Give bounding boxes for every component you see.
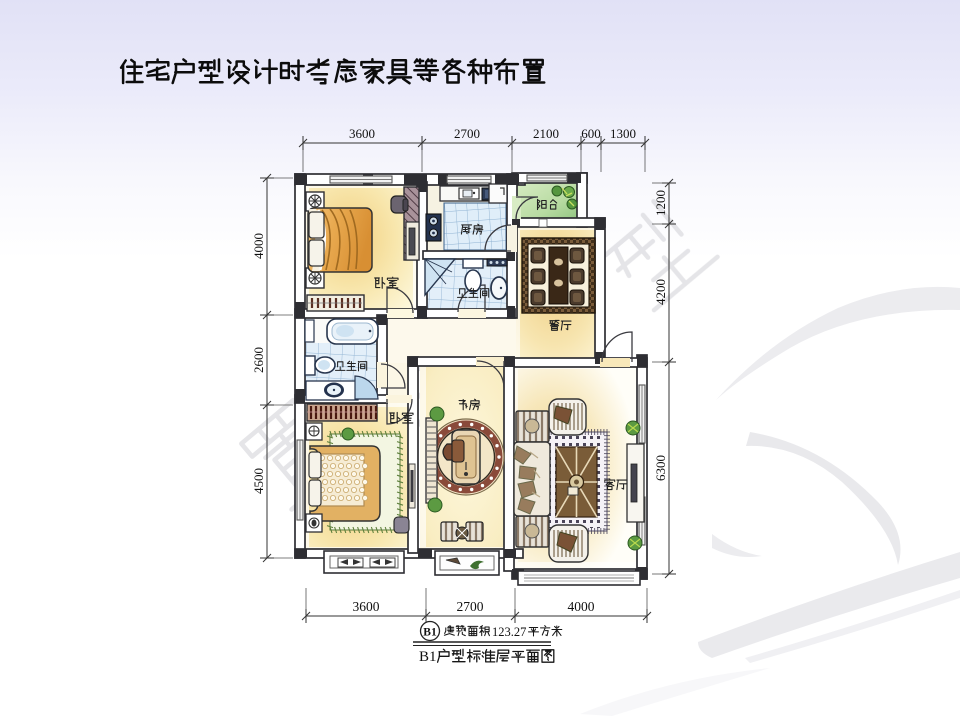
svg-text:2700: 2700 <box>454 126 480 141</box>
svg-text:4500: 4500 <box>251 468 266 494</box>
svg-text:2700: 2700 <box>457 599 484 614</box>
svg-text:3600: 3600 <box>349 126 375 141</box>
svg-text:600: 600 <box>581 126 601 141</box>
svg-text:B1: B1 <box>419 649 437 665</box>
svg-text:1200: 1200 <box>653 190 668 216</box>
svg-text:6300: 6300 <box>653 455 668 481</box>
svg-text:4000: 4000 <box>251 233 266 259</box>
svg-text:3600: 3600 <box>353 599 380 614</box>
svg-text:2100: 2100 <box>533 126 559 141</box>
svg-text:4200: 4200 <box>653 279 668 305</box>
svg-text:1300: 1300 <box>610 126 636 141</box>
svg-text:4000: 4000 <box>568 599 595 614</box>
svg-text:B1: B1 <box>423 627 437 639</box>
svg-text:2600: 2600 <box>251 347 266 373</box>
svg-text:123.27: 123.27 <box>492 625 526 639</box>
